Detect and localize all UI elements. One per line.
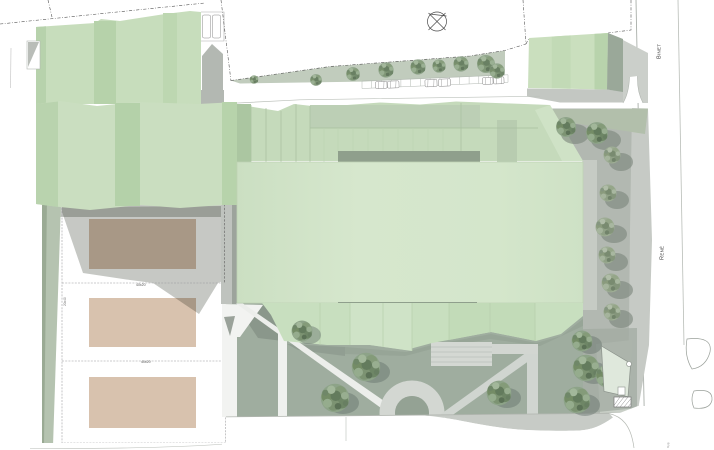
svg-text:40x20: 40x20 (136, 283, 146, 287)
svg-text:20x40: 20x40 (63, 297, 67, 306)
svg-text:40x20: 40x20 (141, 360, 151, 364)
svg-text:rue: rue (666, 442, 670, 448)
